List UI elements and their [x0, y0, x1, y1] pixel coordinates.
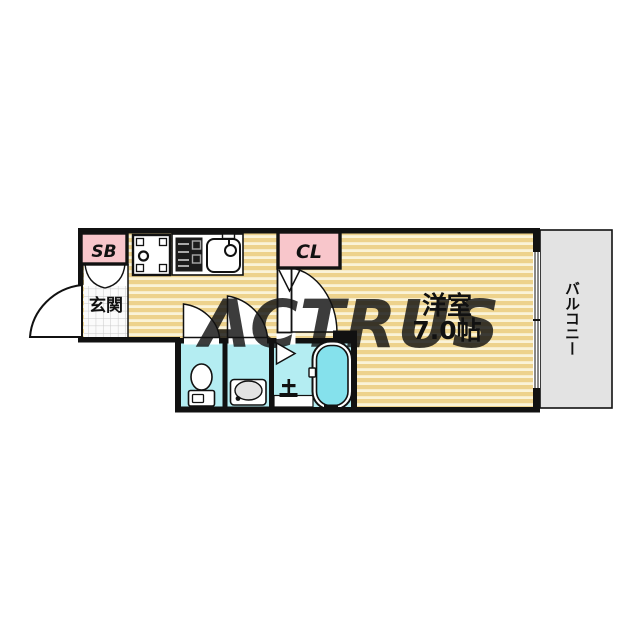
wall-door-corner: [333, 331, 357, 341]
balcony-label: バルコニー: [563, 281, 581, 356]
floorplan-svg: ACTRUS: [0, 0, 640, 640]
kitchen-sink-icon: [207, 234, 240, 272]
entry-door-swing-icon: [30, 285, 82, 337]
floorplan-canvas: ACTRUS: [0, 0, 640, 640]
toilet-icon: [189, 364, 215, 406]
entrance-label: 玄関: [89, 295, 123, 316]
wall-bottom: [175, 407, 540, 413]
washing-machine-pan-icon: [133, 235, 170, 275]
wall-entrance-bottom: [78, 337, 180, 343]
window: [533, 252, 540, 388]
window-center-tick: [533, 319, 540, 321]
closet-label: CL: [296, 241, 322, 263]
shoe-box-label: SB: [91, 242, 116, 262]
main-room-size-label: 7.0帖: [412, 316, 481, 345]
washbasin-icon: [231, 380, 267, 406]
bathtub-icon: [309, 342, 352, 411]
bathroom-ledge: [274, 396, 313, 408]
exterior-cutout: [70, 342, 175, 422]
wall-right-top: [533, 228, 540, 252]
gas-stove-icon: [176, 238, 203, 272]
kitchen-fixtures: [133, 234, 243, 275]
wall-right-bottom: [533, 388, 540, 413]
